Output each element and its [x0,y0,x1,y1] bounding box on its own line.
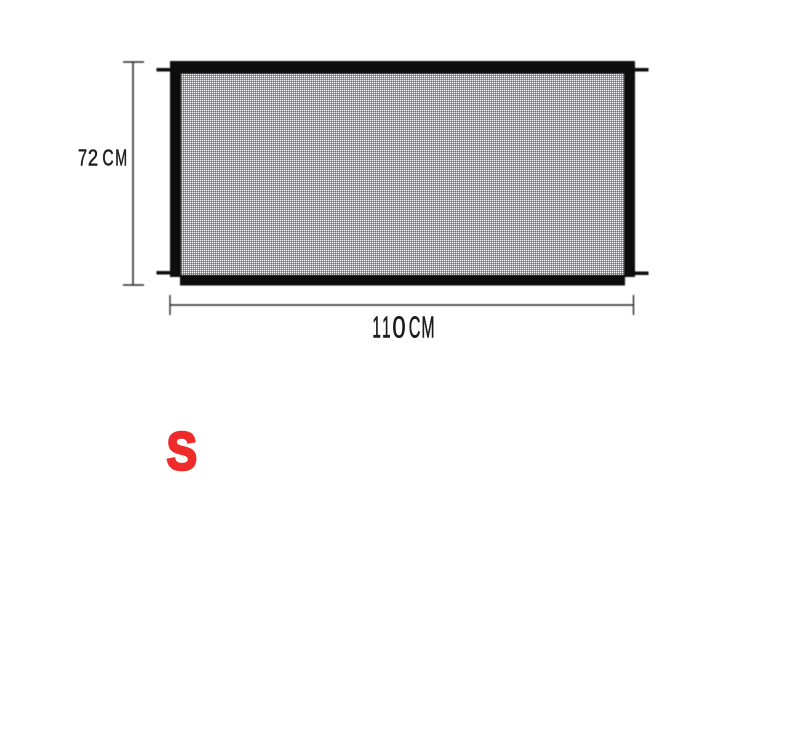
svg-text:C: C [409,311,421,345]
svg-text:M: M [115,146,127,171]
svg-text:2: 2 [88,145,98,170]
svg-text:C: C [102,145,113,171]
svg-text:1: 1 [382,311,390,345]
svg-text:7: 7 [78,146,87,171]
svg-text:0: 0 [392,309,405,344]
svg-text:M: M [421,311,434,345]
svg-text:1: 1 [372,311,380,345]
svg-text:S: S [167,421,198,481]
